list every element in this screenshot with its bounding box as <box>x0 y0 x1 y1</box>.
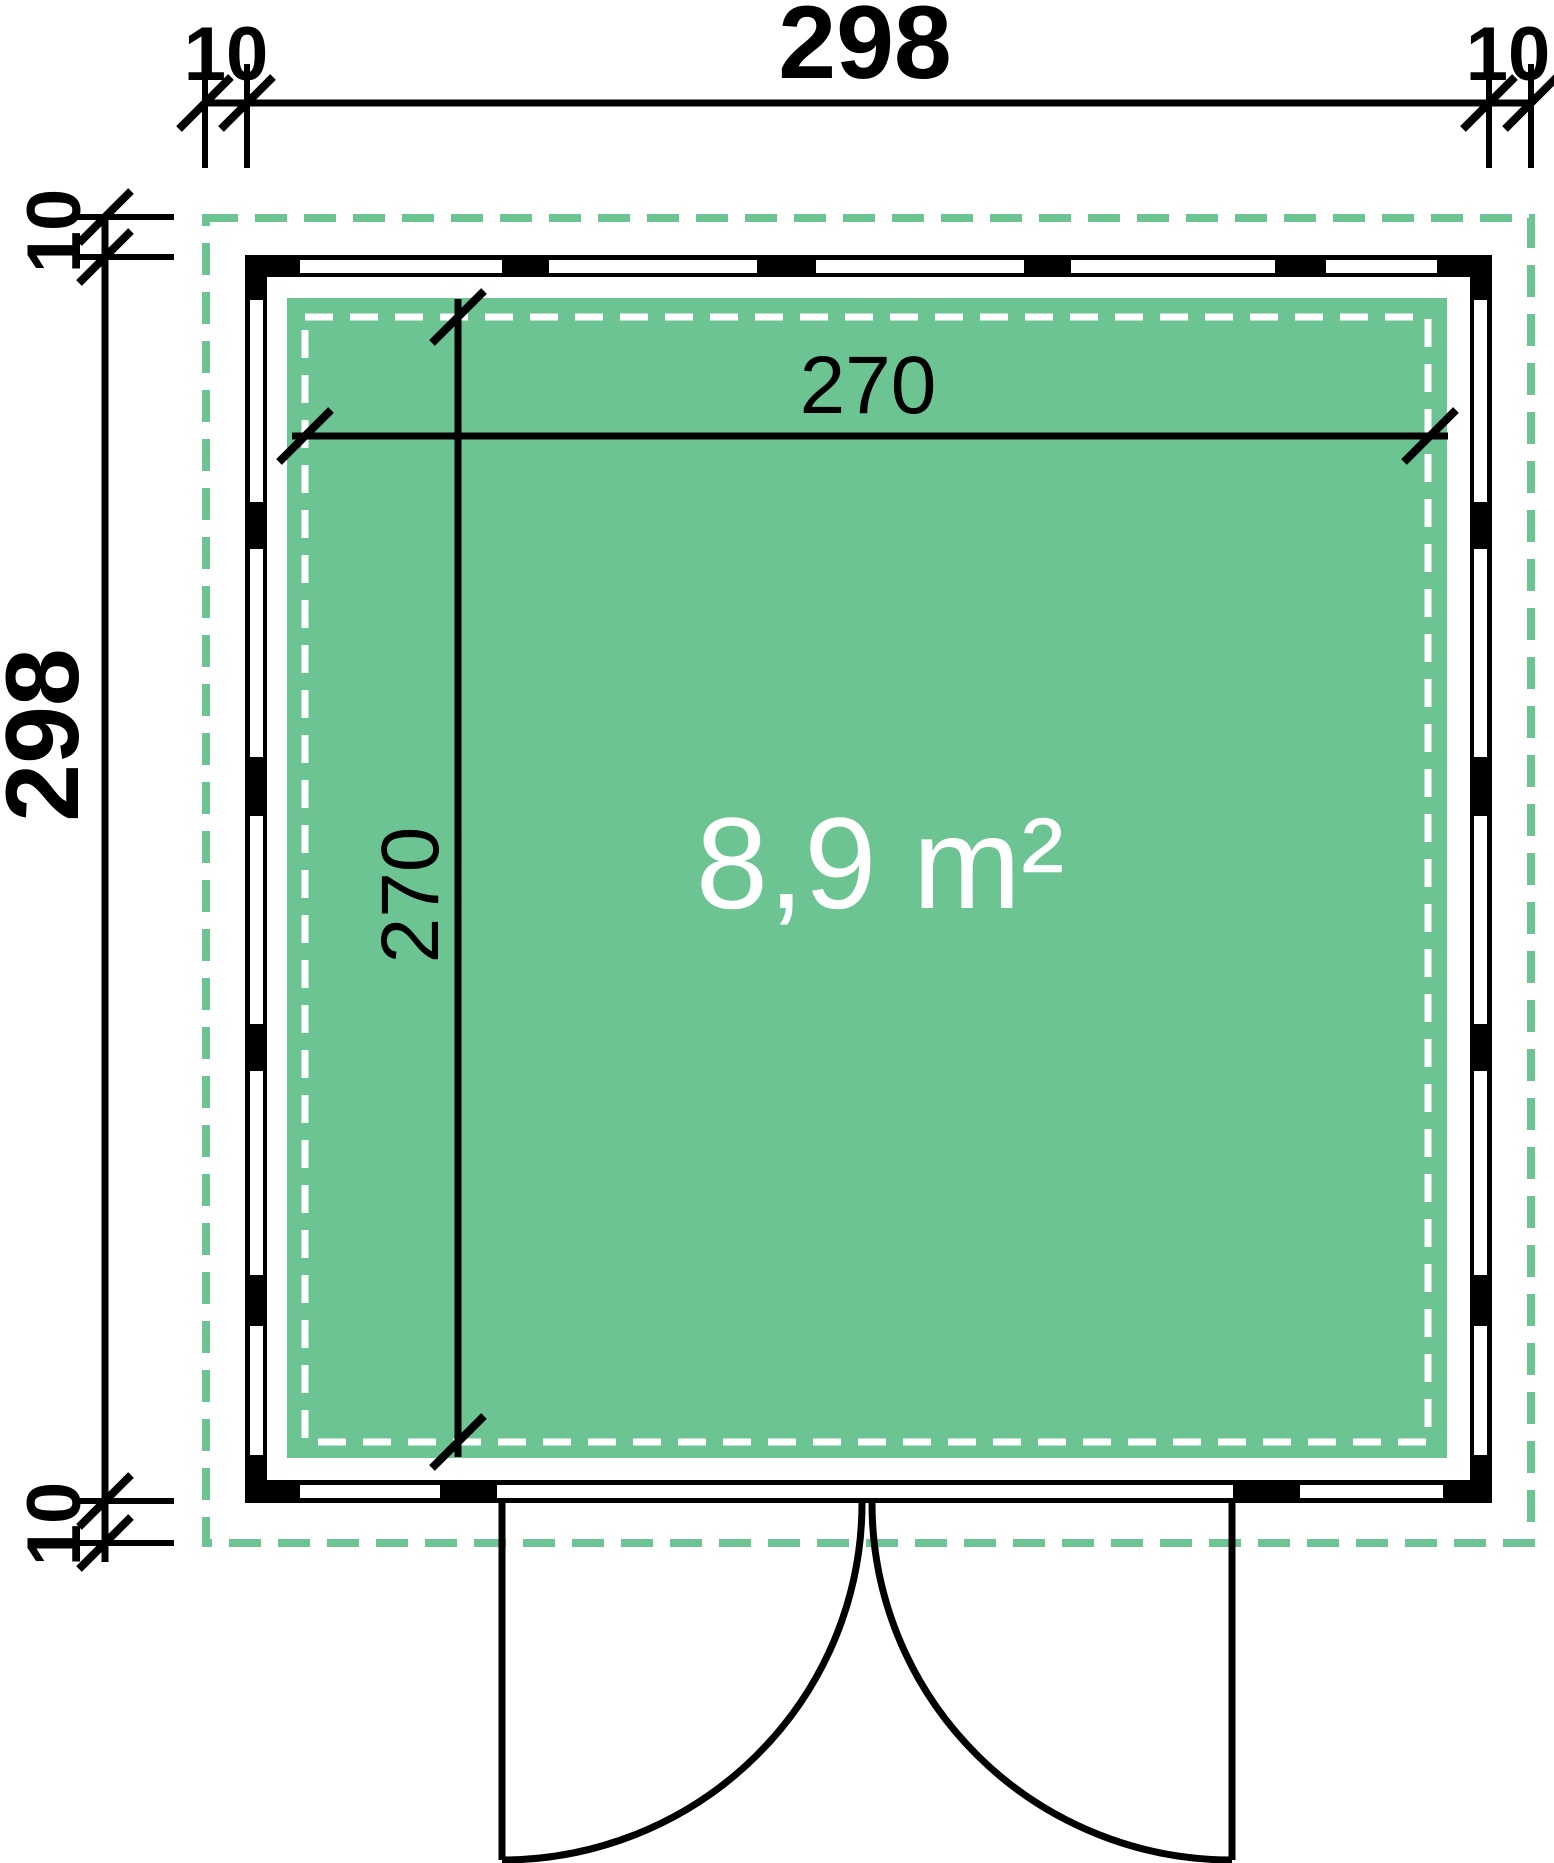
wall-opening <box>1300 1485 1443 1498</box>
wall-opening <box>1474 1071 1487 1275</box>
wall-opening <box>1474 1326 1487 1455</box>
wall-opening <box>549 260 757 273</box>
wall-openings-top <box>300 260 1437 273</box>
label-inner-width: 270 <box>800 340 937 431</box>
label-outer-height: 298 <box>0 648 101 822</box>
door-threshold <box>497 1485 1233 1498</box>
label-overhang-top-left: 10 <box>184 12 269 97</box>
wall-opening <box>250 549 263 757</box>
wall-opening <box>1474 300 1487 502</box>
floorplan-canvas: 298 10 10 298 10 10 270 270 8,9 m² <box>0 0 1554 1863</box>
wall-opening <box>1474 816 1487 1024</box>
wall-opening <box>300 260 502 273</box>
label-overhang-left-top: 10 <box>12 189 97 274</box>
floorplan-drawing: 298 10 10 298 10 10 270 270 8,9 m² <box>0 0 1554 1863</box>
dimension-left <box>76 191 174 1569</box>
label-overhang-left-bottom: 10 <box>12 1482 97 1567</box>
double-door <box>502 1503 1232 1860</box>
wall-opening <box>250 1071 263 1275</box>
wall-opening <box>250 816 263 1024</box>
wall-opening <box>1326 260 1437 273</box>
wall-opening <box>250 300 263 502</box>
label-outer-width: 298 <box>778 0 952 101</box>
label-floor-area: 8,9 m² <box>696 790 1064 936</box>
wall-opening <box>1071 260 1275 273</box>
wall-opening <box>816 260 1024 273</box>
wall-opening <box>1474 549 1487 757</box>
label-inner-height: 270 <box>365 827 456 964</box>
wall-opening <box>250 1326 263 1455</box>
door-swing-arc-right <box>872 1503 1232 1860</box>
door-swing-arc-left <box>502 1503 862 1860</box>
wall-opening <box>300 1485 440 1498</box>
label-overhang-top-right: 10 <box>1466 12 1551 97</box>
